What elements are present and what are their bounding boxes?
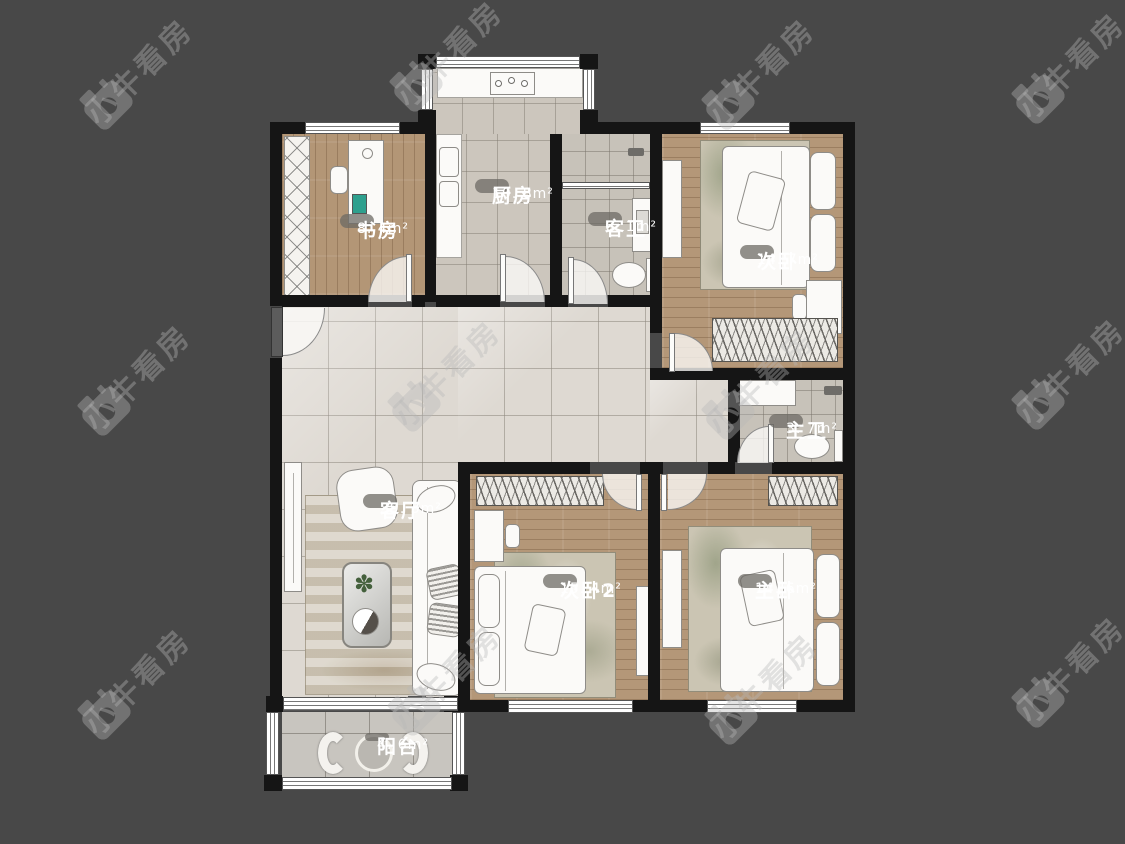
wall-pier <box>266 696 283 712</box>
wall <box>425 134 436 302</box>
bedroom-top-window <box>700 122 790 134</box>
wall <box>458 462 590 474</box>
bedroom-top-pillow <box>810 152 836 210</box>
watermark-text: 小牛看房 <box>1006 0 1125 127</box>
study-window <box>305 122 400 134</box>
bedroom-2-window <box>508 700 633 713</box>
study-desk-lamp <box>362 148 373 159</box>
master-pillow <box>816 622 840 686</box>
master-bath-door-leaf <box>768 424 774 463</box>
bedroom-2-desk <box>474 510 504 562</box>
kitchen-side-window <box>421 69 433 110</box>
wall <box>640 462 663 474</box>
bedroom-2-chair <box>505 524 520 548</box>
kitchen-sink-2 <box>439 181 459 207</box>
wall-pier <box>264 775 282 791</box>
stove-burner <box>521 80 528 87</box>
room-label-bedroom-top: 次卧 14. 7m² <box>740 245 774 259</box>
wall <box>418 110 436 134</box>
wall <box>843 122 855 712</box>
room-label-bedroom-2: 次卧2 15. 4m² <box>543 574 577 588</box>
watermark-logo-icon <box>1006 65 1068 127</box>
wall <box>772 462 855 474</box>
wall-pier <box>450 775 468 791</box>
watermark-logo-icon <box>72 681 134 743</box>
watermark-text: 小牛看房 <box>1006 604 1125 731</box>
watermark-text: 小牛看房 <box>72 312 199 439</box>
study-desk-art <box>352 194 367 214</box>
bedroom-top-cabinet <box>662 160 682 258</box>
room-label-study: 书房 8. 4m² <box>340 214 374 228</box>
balcony-window-bottom <box>282 777 452 790</box>
wall <box>282 295 368 307</box>
room-area: 39. 3m² <box>380 501 442 518</box>
watermark-logo-icon <box>74 71 136 133</box>
watermark-logo-icon <box>1006 669 1068 731</box>
watermark-text: 小牛看房 <box>72 616 199 743</box>
watermark-logo-icon <box>72 377 134 439</box>
room-label-living: 客厅 39. 3m² <box>363 494 397 508</box>
floorplan-canvas: ✽ ✽ <box>0 0 1125 844</box>
room-label-guest-bath: 客卫 6. 1m² <box>588 212 622 226</box>
bed-fold-line <box>505 571 506 691</box>
master-pillow <box>816 554 840 618</box>
balcony-window-right <box>452 712 465 775</box>
wall <box>797 700 855 712</box>
room-label-balcony: 阳台 4. 6m² <box>365 733 389 741</box>
kitchen-stove <box>490 72 535 95</box>
shower-head-icon <box>628 148 644 156</box>
room-area: 15. 4m² <box>560 581 622 598</box>
tv-line <box>293 473 294 583</box>
wall <box>412 295 425 307</box>
study-door-leaf <box>406 254 412 302</box>
balcony-chair <box>318 732 348 774</box>
wall <box>270 122 282 306</box>
bedroom-top-door-leaf <box>669 333 675 372</box>
study-chair <box>330 166 348 194</box>
dining-hall-floor <box>458 307 650 462</box>
watermark-text: 小牛看房 <box>74 6 201 133</box>
wall <box>436 295 500 307</box>
room-area: 14. 6m² <box>755 581 817 598</box>
entry-door-leaf <box>271 307 283 357</box>
wall <box>608 295 650 307</box>
bedroom-2-wardrobe <box>476 476 604 506</box>
room-area: 14. 7m² <box>757 252 819 269</box>
kitchen-door-leaf <box>500 254 506 302</box>
tv-cabinet <box>284 462 302 592</box>
guest-bath-door-leaf <box>568 257 574 304</box>
bedroom-top-wardrobe <box>712 318 838 362</box>
room-area: 10. 8m² <box>492 186 554 203</box>
coffee-table-tray <box>352 608 379 635</box>
bed-fold-line <box>783 553 784 689</box>
master-bath-faucet-icon <box>824 386 842 395</box>
kitchen-sink <box>439 147 459 177</box>
kitchen-window <box>436 56 580 68</box>
bedroom-2-door-leaf <box>636 474 642 511</box>
room-area: 8. 4m² <box>357 221 409 238</box>
room-label-kitchen: 厨房 10. 8m² <box>475 179 509 193</box>
master-bedroom-door-leaf <box>661 474 667 511</box>
wall <box>270 358 282 712</box>
plant-icon: ✽ <box>354 572 374 596</box>
master-bedroom-window <box>707 700 797 713</box>
guest-toilet-bowl <box>612 262 646 288</box>
stove-burner <box>495 80 502 87</box>
bedroom-2-pillow <box>478 632 500 686</box>
balcony-window-left <box>266 712 279 775</box>
room-area: 6. 1m² <box>605 219 657 236</box>
bedroom-top-chair <box>792 294 807 320</box>
kitchen-side-window <box>583 69 595 110</box>
watermark-text: 小牛看房 <box>1006 306 1125 433</box>
wall <box>648 474 660 712</box>
wall <box>458 462 470 712</box>
room-area: 3. 7m² <box>786 421 838 438</box>
balcony-sliding-door <box>283 697 458 711</box>
room-label-master-bath: 主卫 3. 7m² <box>769 414 803 428</box>
room-label-master-bedroom: 主卧 14. 6m² <box>738 574 772 588</box>
shower-glass-partition <box>562 182 650 189</box>
bedroom-2-pillow <box>478 574 500 628</box>
wall <box>550 134 562 307</box>
master-wardrobe <box>768 476 838 506</box>
corridor-floor <box>650 380 728 462</box>
wall <box>584 122 700 134</box>
wall <box>580 54 598 69</box>
master-bath-sink <box>736 380 796 406</box>
wall <box>418 54 436 69</box>
room-area: 4. 6m² <box>377 737 429 754</box>
wall <box>708 462 735 474</box>
master-cabinet <box>662 550 682 648</box>
study-closet <box>284 136 310 296</box>
watermark-logo-icon <box>1006 371 1068 433</box>
watermark-text: 小牛看房 <box>696 6 823 133</box>
wall <box>633 700 707 712</box>
stove-burner <box>508 77 515 84</box>
